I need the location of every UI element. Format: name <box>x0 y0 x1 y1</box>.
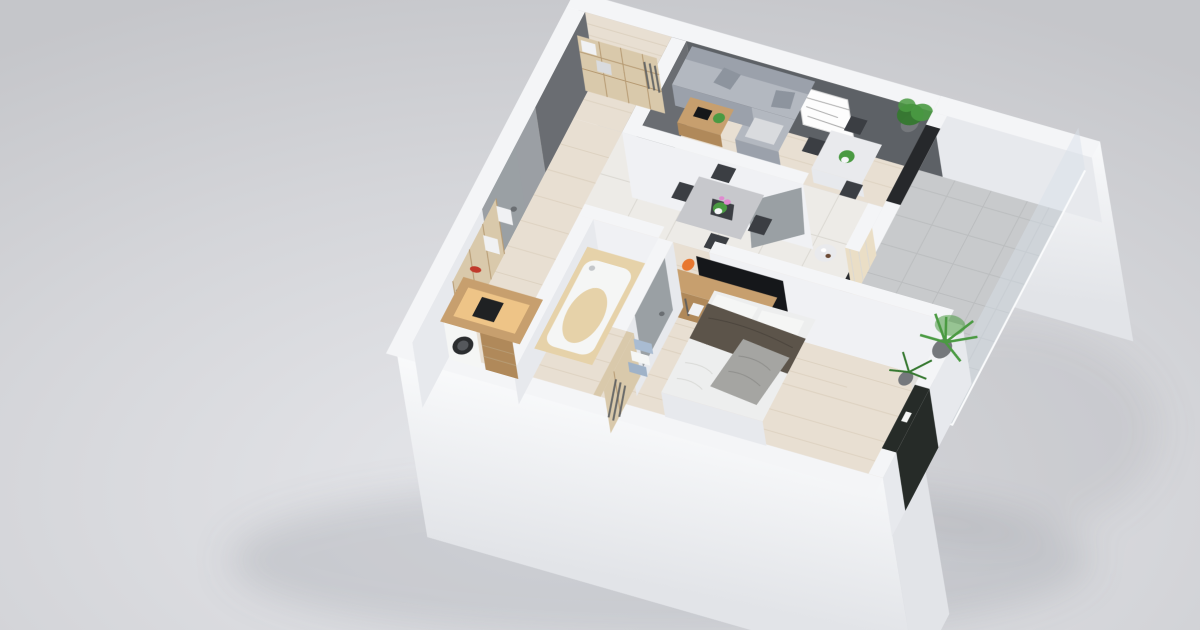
apartment-3d-scene <box>0 0 1200 630</box>
floorplan-render <box>0 0 1200 630</box>
